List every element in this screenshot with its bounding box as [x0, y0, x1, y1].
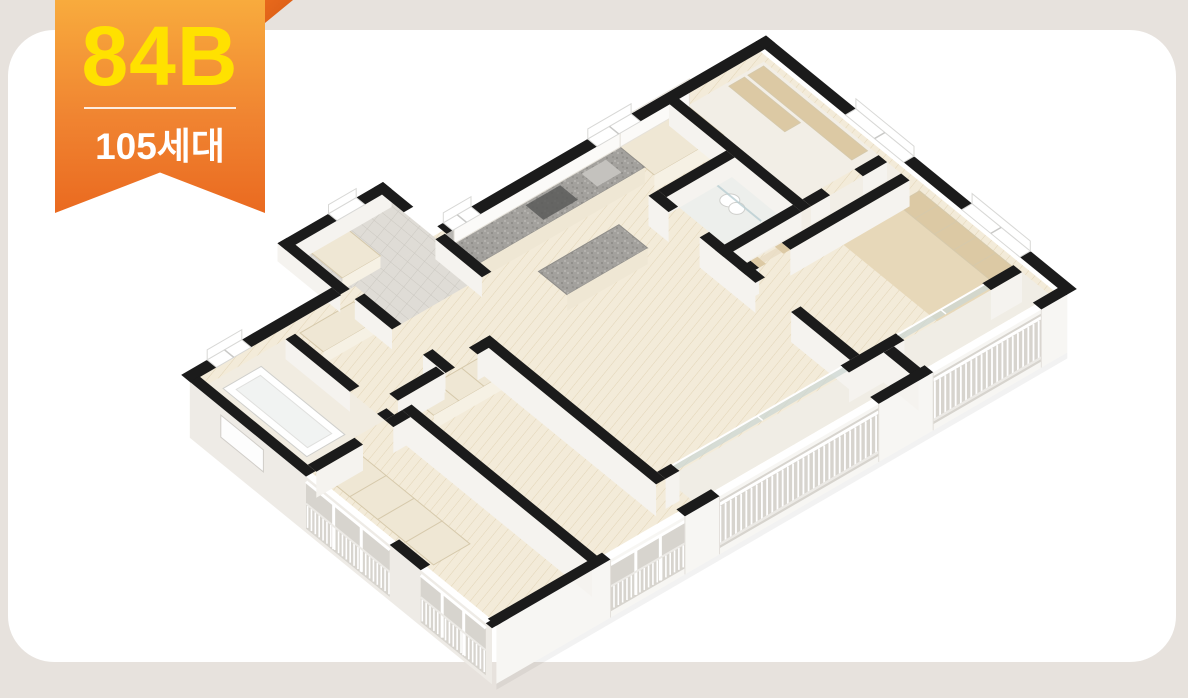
unit-code-label: 84B — [55, 0, 265, 98]
unit-count-label: 105세대 — [55, 116, 265, 170]
page-background: { "badge": { "unit_code": "84B", "unit_c… — [0, 0, 1188, 698]
badge-divider — [84, 107, 236, 109]
